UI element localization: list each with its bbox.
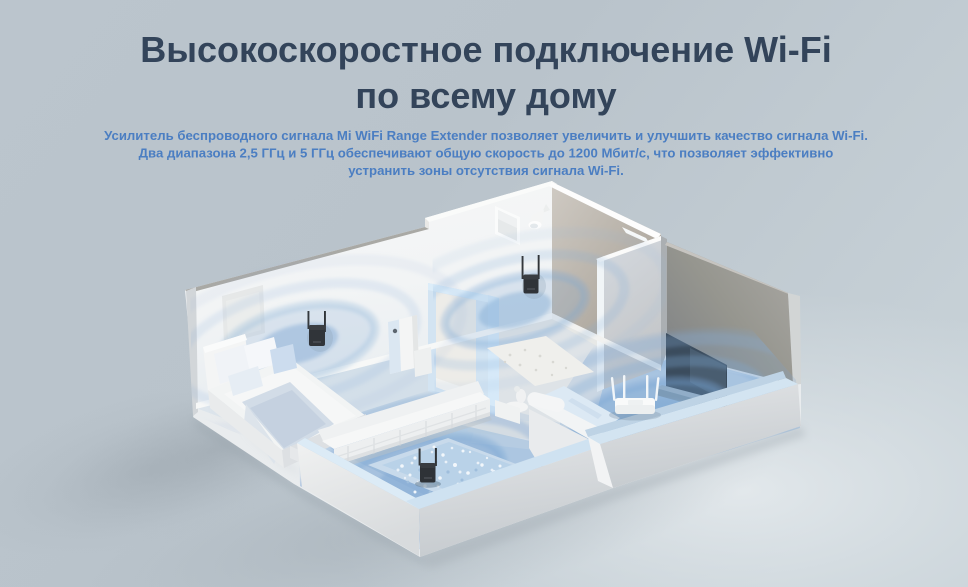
svg-text:Высокоскоростное подключение W: Высокоскоростное подключение Wi-Fi xyxy=(140,29,832,70)
svg-text:по всему дому: по всему дому xyxy=(355,75,616,116)
svg-text:Два диапазона 2,5 ГГц и 5 ГГц: Два диапазона 2,5 ГГц и 5 ГГц обеспечива… xyxy=(139,146,834,161)
svg-text:Усилитель беспроводного сигнал: Усилитель беспроводного сигнала Mi WiFi … xyxy=(104,128,868,143)
svg-text:устранить зоны отсутствия сигн: устранить зоны отсутствия сигнала Wi-Fi. xyxy=(348,163,624,178)
